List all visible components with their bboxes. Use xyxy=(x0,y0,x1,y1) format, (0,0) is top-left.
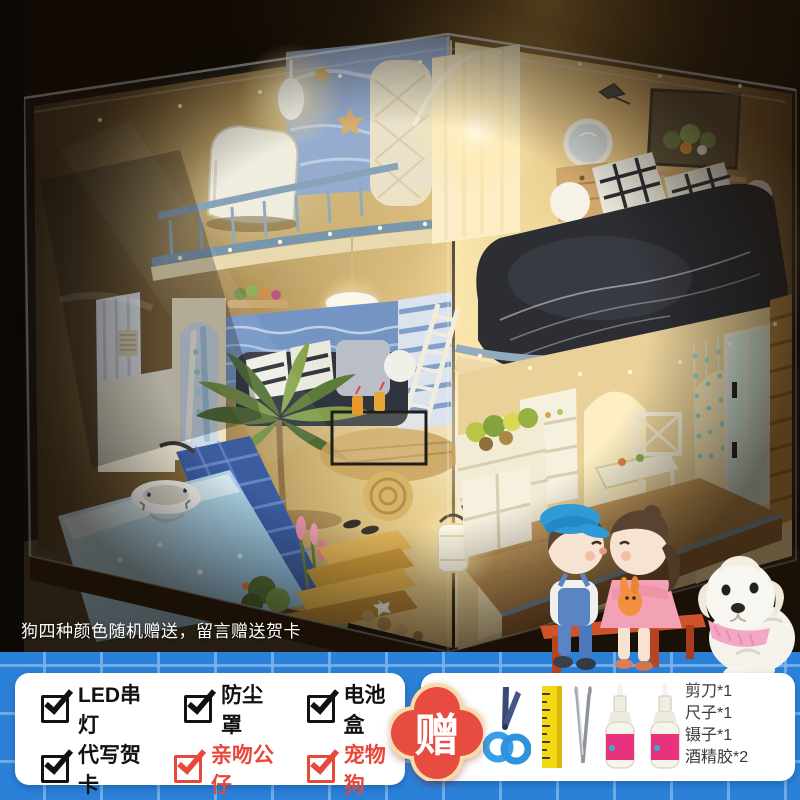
gifts-panel: 赠 xyxy=(421,673,795,781)
dog-figurine xyxy=(698,556,795,681)
feature-led-lights: LED串灯 xyxy=(41,679,160,739)
gift-badge-label: 赠 xyxy=(391,681,483,781)
figurines xyxy=(500,486,800,698)
feature-label: 亲吻公仔 xyxy=(211,739,293,799)
left-dark-edge xyxy=(0,0,24,652)
ruler-icon xyxy=(540,684,564,770)
features-panel: LED串灯 防尘罩 电池盒 xyxy=(15,673,405,785)
feature-label: 代写贺卡 xyxy=(78,739,160,799)
promo-banner: LED串灯 防尘罩 电池盒 xyxy=(0,652,800,800)
feature-kissing-dolls: 亲吻公仔 xyxy=(174,739,293,799)
checkbox-checked-icon xyxy=(184,695,212,723)
checkbox-checked-icon xyxy=(41,695,69,723)
gift-item: 镊子*1 xyxy=(685,726,781,746)
feature-label: LED串灯 xyxy=(78,679,160,739)
features-row-2: 代写贺卡 亲吻公仔 宠物狗 xyxy=(41,739,405,799)
gift-badge: 赠 xyxy=(391,681,483,781)
feature-dust-cover: 防尘罩 xyxy=(184,679,282,739)
gift-tools xyxy=(483,673,683,781)
features-row-1: LED串灯 防尘罩 电池盒 xyxy=(41,679,405,739)
feature-label: 防尘罩 xyxy=(221,679,282,739)
gift-list: 剪刀*1 尺子*1 镊子*1 酒精胶*2 xyxy=(685,682,781,768)
checkbox-checked-icon xyxy=(174,755,202,783)
glue-bottle-icon xyxy=(602,684,638,770)
glue-bottle-icon xyxy=(647,684,683,770)
girl-figurine xyxy=(600,505,682,671)
product-image: 狗四种颜色随机赠送，留言赠送贺卡 xyxy=(0,0,800,800)
checkbox-checked-icon xyxy=(307,755,335,783)
tweezers-icon xyxy=(573,685,593,769)
gift-item: 酒精胶*2 xyxy=(685,748,781,768)
boy-figurine xyxy=(540,504,611,670)
scissors-icon xyxy=(483,685,531,769)
gift-item: 剪刀*1 xyxy=(685,682,781,702)
checkbox-checked-icon xyxy=(41,755,69,783)
checkbox-checked-icon xyxy=(307,695,335,723)
photo-caption: 狗四种颜色随机赠送，留言赠送贺卡 xyxy=(21,617,301,642)
feature-greeting-card: 代写贺卡 xyxy=(41,739,160,799)
gift-item: 尺子*1 xyxy=(685,704,781,724)
